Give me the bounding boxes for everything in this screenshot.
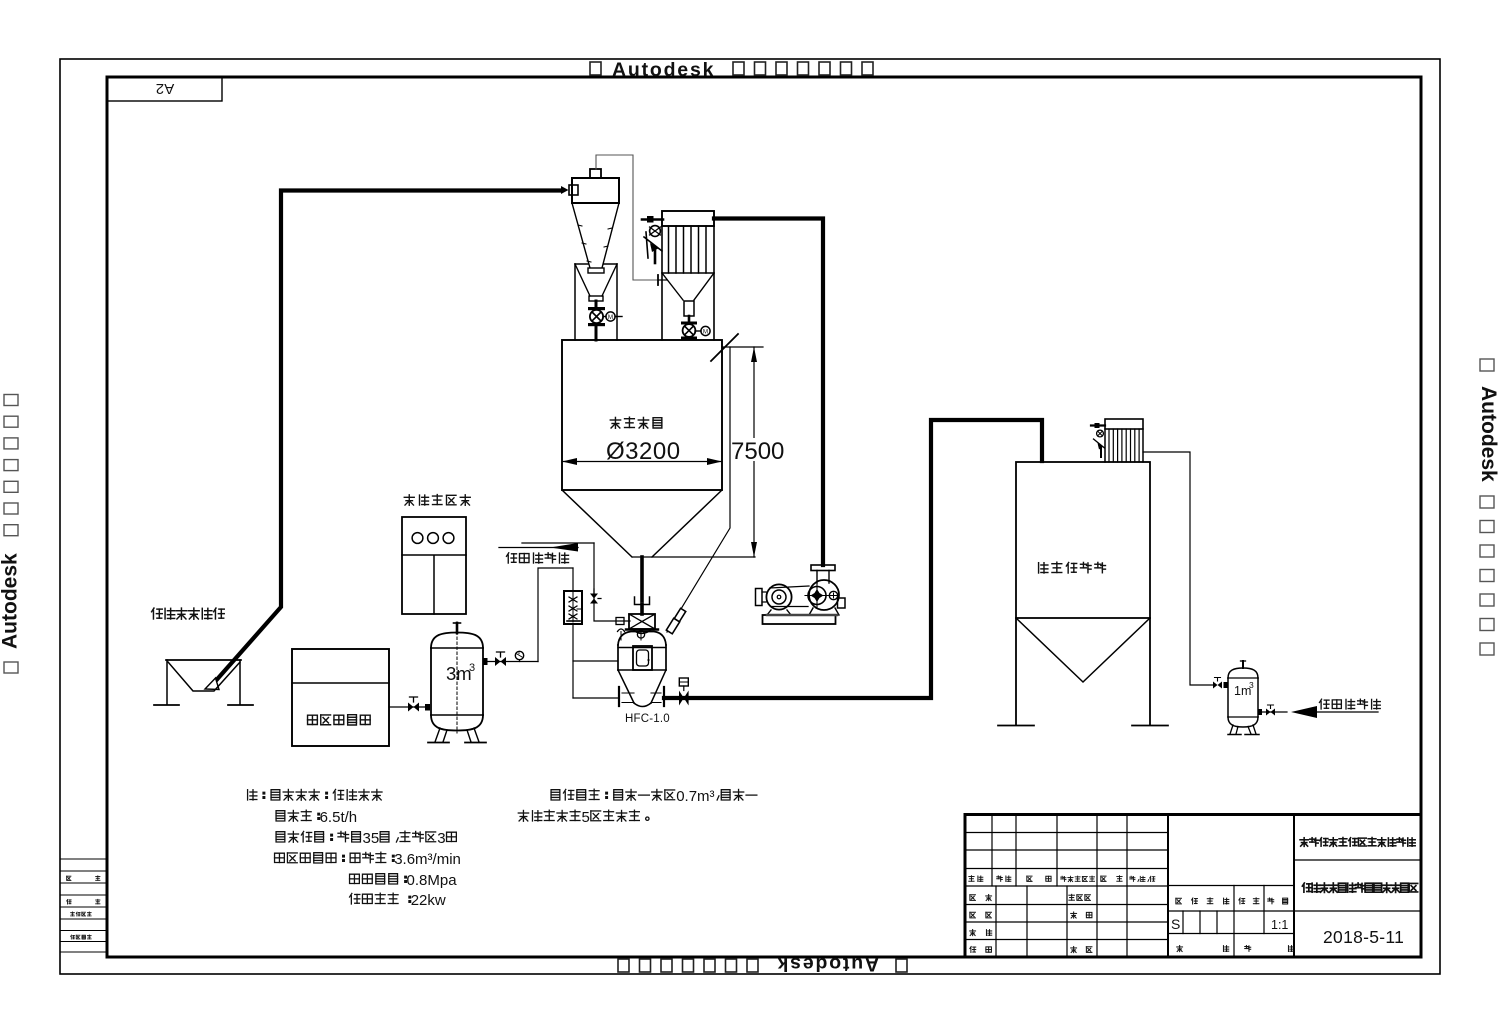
svg-text:3: 3: [437, 830, 445, 847]
svg-text:3: 3: [469, 662, 475, 674]
svg-text:22kw: 22kw: [411, 892, 446, 909]
svg-text:6.5t/h: 6.5t/h: [320, 809, 358, 826]
svg-text:Autodesk: Autodesk: [612, 59, 715, 81]
svg-text:Autodesk: Autodesk: [0, 553, 22, 649]
svg-text:3: 3: [1249, 680, 1254, 690]
svg-text:M: M: [608, 314, 613, 321]
svg-text:0.7m³: 0.7m³: [676, 788, 714, 805]
svg-text:0.8Mpa: 0.8Mpa: [407, 872, 458, 889]
svg-text:35: 35: [363, 830, 380, 847]
svg-text:M: M: [703, 329, 708, 336]
svg-text:Autodesk: Autodesk: [776, 953, 879, 975]
svg-text:7500: 7500: [731, 438, 784, 465]
svg-text:S: S: [1171, 916, 1180, 932]
svg-text:3m: 3m: [446, 663, 472, 684]
svg-text:HFC-1.0: HFC-1.0: [625, 713, 670, 725]
svg-text:Ø3200: Ø3200: [606, 438, 681, 465]
svg-text:1:1: 1:1: [1271, 918, 1288, 932]
svg-text:5: 5: [582, 809, 590, 826]
svg-text:Autodesk: Autodesk: [1477, 386, 1500, 482]
svg-text:A2: A2: [156, 80, 174, 97]
svg-text:2018-5-11: 2018-5-11: [1323, 927, 1404, 947]
svg-text:3.6m³/min: 3.6m³/min: [394, 851, 461, 868]
